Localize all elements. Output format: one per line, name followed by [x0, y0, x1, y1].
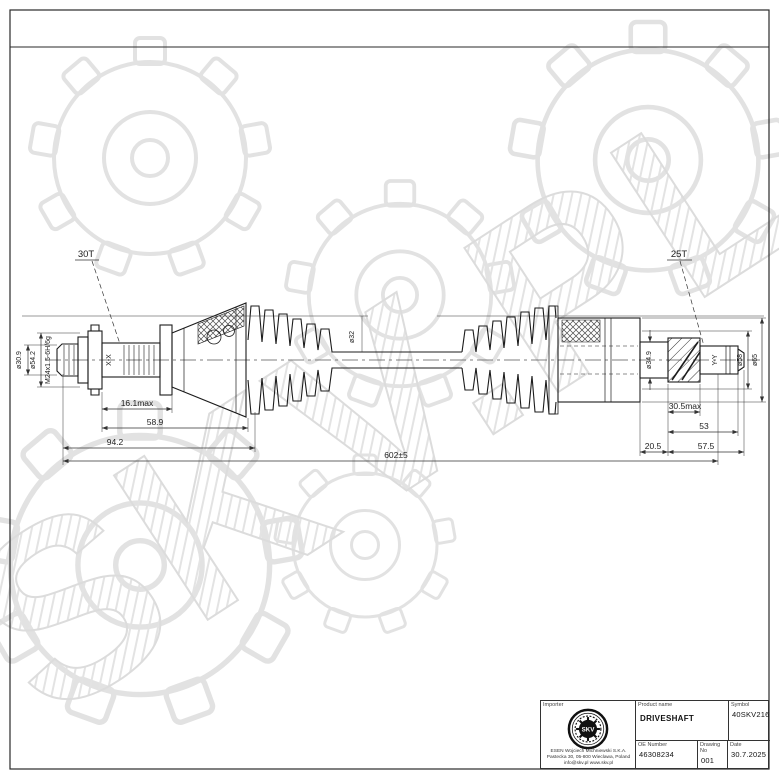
dim-94-2: 94.2: [107, 437, 124, 447]
dim-16-1: 16.1max: [121, 398, 154, 408]
dim-thread: M24x1.5-6H/6g: [45, 336, 52, 384]
dim-dia-58: ø58: [737, 354, 744, 366]
date-label: Date: [728, 741, 770, 748]
product-name-label: Product name: [636, 701, 728, 708]
oe-number-cell: OE Number 46308234: [636, 741, 698, 768]
company-address: ESEN Wojciech Michniewski S.K.A. Pasteck…: [541, 749, 636, 767]
symbol-cell: Symbol 40SKV216: [729, 701, 770, 741]
driveshaft-drawing: SKV.PL: [0, 0, 779, 779]
dim-dia-stub: ø30.9: [16, 351, 23, 369]
drawing-no-cell: Drawing No 001: [698, 741, 728, 768]
drawing-no-value: 001: [698, 754, 727, 765]
oe-number-value: 46308234: [636, 748, 697, 759]
section-left-label: X-X: [106, 354, 113, 366]
importer-cell: Importer SKV ESEN Wojciech Michniewski S…: [541, 701, 636, 768]
date-cell: Date 30.7.2025: [728, 741, 770, 768]
section-right-label: Y-Y: [712, 354, 719, 365]
abs-ring-hatch: [562, 320, 600, 342]
dim-58-9: 58.9: [147, 417, 164, 427]
technical-drawing-page: SKV.PL: [0, 0, 779, 779]
dim-dia-65: ø65: [752, 354, 759, 366]
product-name-value: DRIVESHAFT: [636, 708, 728, 723]
dim-20-5: 20.5: [645, 441, 662, 451]
dim-53: 53: [699, 421, 709, 431]
logo-text: SKV: [582, 726, 596, 733]
symbol-value: 40SKV216: [729, 708, 770, 719]
dim-dia-shaft: ø32: [349, 331, 356, 343]
title-block: Importer SKV ESEN Wojciech Michniewski S…: [540, 700, 769, 769]
importer-label: Importer: [541, 701, 635, 708]
gear-watermark-icon: [29, 38, 271, 276]
skv-logo-icon: SKV: [567, 708, 609, 750]
watermark-text: SKV.PL: [0, 29, 779, 768]
symbol-label: Symbol: [729, 701, 770, 708]
dim-dia-flange: ø54.2: [30, 351, 37, 369]
callout-left-spline: 30T: [78, 249, 95, 260]
dim-overall: 602±5: [384, 450, 408, 460]
oe-number-label: OE Number: [636, 741, 697, 748]
dim-dia-stub-right: ø34.9: [646, 351, 653, 369]
callout-right-spline: 25T: [671, 249, 688, 260]
dim-30-5: 30.5max: [669, 401, 702, 411]
company-line3: info@skv.pl www.skv.pl: [541, 761, 636, 767]
product-name-cell: Product name DRIVESHAFT: [636, 701, 729, 741]
date-value: 30.7.2025: [728, 748, 770, 759]
drawing-no-label: Drawing No: [698, 741, 727, 754]
watermark: SKV.PL: [0, 22, 779, 768]
dim-57-5: 57.5: [698, 441, 715, 451]
